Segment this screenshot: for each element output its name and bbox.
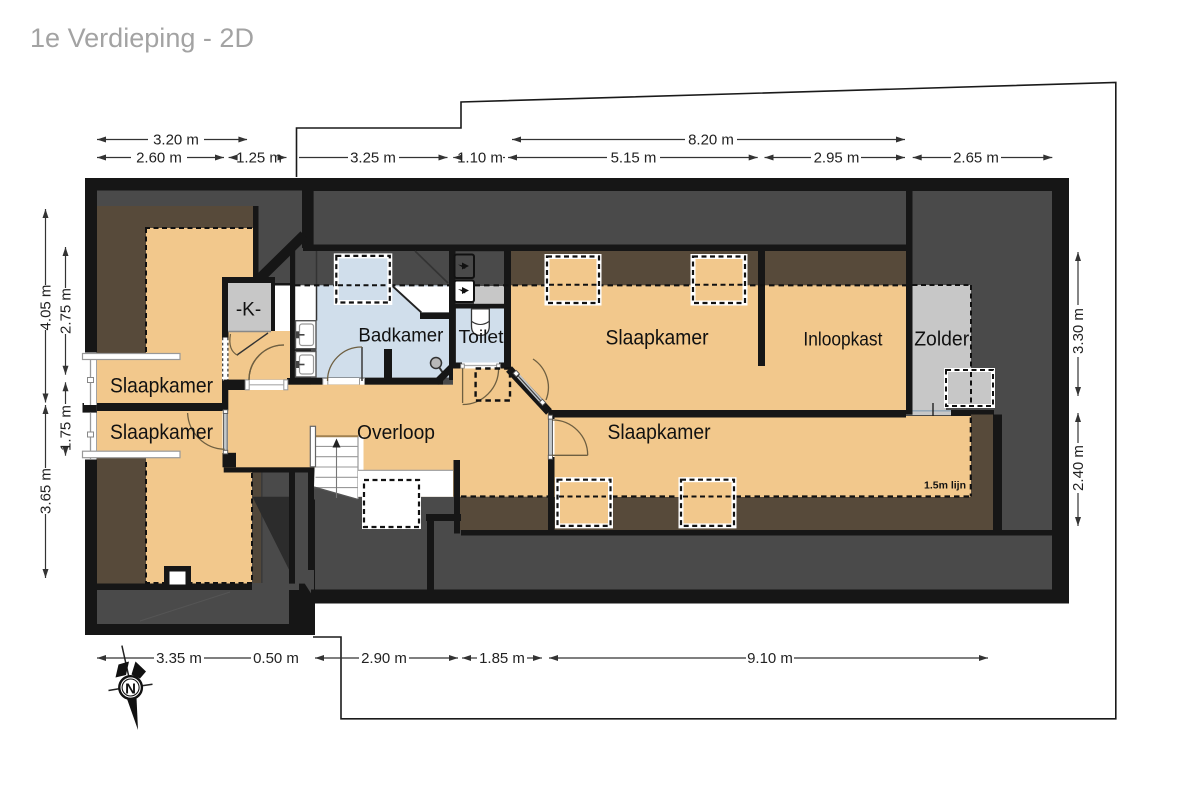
svg-text:2.40 m: 2.40 m [1070,445,1087,491]
svg-text:-K-: -K- [236,300,261,321]
svg-text:Slaapkamer: Slaapkamer [110,421,213,444]
svg-text:1.25 m: 1.25 m [236,150,282,167]
svg-text:Overloop: Overloop [357,422,435,444]
svg-text:5.15 m: 5.15 m [611,150,657,167]
svg-text:Inloopkast: Inloopkast [803,328,883,350]
svg-text:8.20 m: 8.20 m [688,132,734,149]
svg-text:2.60 m: 2.60 m [136,150,182,167]
svg-text:1.5m lijn: 1.5m lijn [924,480,966,492]
svg-text:1.75 m: 1.75 m [58,405,75,451]
svg-text:1.85 m: 1.85 m [479,650,525,667]
svg-text:Slaapkamer: Slaapkamer [110,375,213,398]
svg-text:3.30 m: 3.30 m [1070,308,1087,354]
svg-text:2.90 m: 2.90 m [361,650,407,667]
svg-text:Slaapkamer: Slaapkamer [606,326,709,349]
svg-text:4.05 m: 4.05 m [38,285,55,331]
svg-text:1e Verdieping - 2D: 1e Verdieping - 2D [30,23,254,53]
svg-text:N: N [125,681,136,698]
svg-text:Slaapkamer: Slaapkamer [608,421,711,444]
svg-text:2.65 m: 2.65 m [953,150,999,167]
svg-text:Badkamer: Badkamer [358,325,444,346]
svg-text:3.65 m: 3.65 m [38,468,55,514]
svg-text:1.10 m: 1.10 m [457,150,503,167]
svg-text:Toilet: Toilet [459,326,504,347]
svg-text:3.25 m: 3.25 m [350,150,396,167]
svg-text:0.50 m: 0.50 m [253,650,299,667]
svg-text:3.35 m: 3.35 m [156,650,202,667]
svg-text:2.95 m: 2.95 m [814,150,860,167]
svg-text:2.75 m: 2.75 m [58,288,75,334]
svg-text:3.20 m: 3.20 m [153,132,199,149]
svg-text:9.10 m: 9.10 m [747,650,793,667]
svg-text:Zolder: Zolder [914,328,969,350]
